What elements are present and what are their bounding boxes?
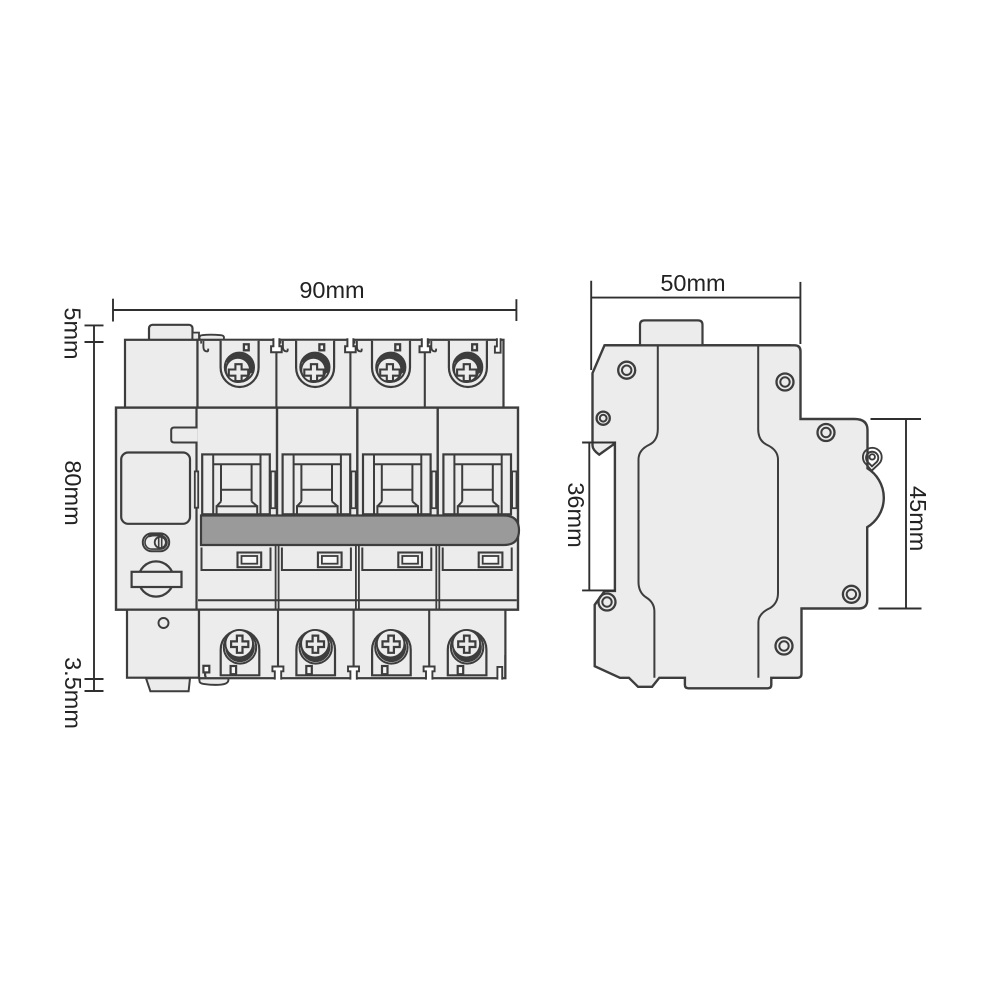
svg-text:36mm: 36mm [563, 482, 589, 547]
svg-text:5mm: 5mm [60, 307, 86, 359]
svg-text:45mm: 45mm [905, 486, 931, 551]
svg-text:90mm: 90mm [299, 277, 364, 303]
svg-text:3.5mm: 3.5mm [60, 657, 86, 729]
svg-text:80mm: 80mm [60, 460, 86, 525]
svg-text:50mm: 50mm [660, 270, 725, 296]
